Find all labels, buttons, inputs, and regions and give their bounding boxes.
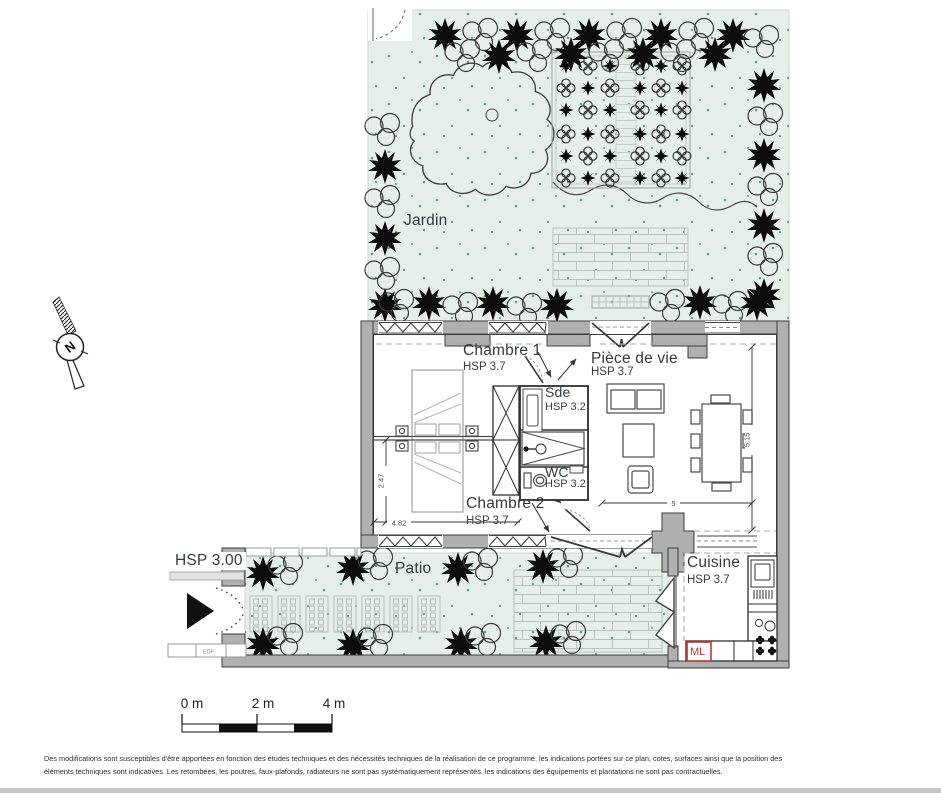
entrance bbox=[187, 588, 244, 634]
dim-bedroom-depth: 2.47 bbox=[377, 474, 386, 489]
shelf bbox=[570, 466, 583, 473]
chair bbox=[743, 458, 752, 472]
chair bbox=[691, 410, 700, 424]
oven-vents bbox=[754, 590, 772, 599]
street-wall bbox=[170, 572, 244, 580]
chair bbox=[691, 458, 700, 472]
hsp-wc: HSP 3.2 bbox=[545, 478, 586, 490]
garden-area bbox=[365, 8, 789, 326]
hsp-chambre1: HSP 3.7 bbox=[463, 361, 506, 373]
dim-living-width: 5 bbox=[671, 499, 675, 508]
north-needle bbox=[53, 297, 76, 335]
bed bbox=[412, 370, 463, 512]
room-label-sde: Sde bbox=[545, 384, 571, 400]
north-tail bbox=[67, 358, 84, 389]
disclaimer-line1: Des modifications sont susceptibles d'êt… bbox=[44, 752, 937, 765]
hsp-sde: HSP 3.2 bbox=[545, 401, 586, 413]
room-label-patio: Patio bbox=[395, 560, 431, 578]
disclaimer-line2: éléments techniques sont indicatives. Le… bbox=[44, 765, 937, 778]
edf-label: EDF bbox=[203, 650, 215, 656]
chair bbox=[691, 434, 700, 448]
entrance-hsp-label: HSP 3.00 bbox=[172, 552, 246, 570]
room-label-chambre2: Chambre 2 bbox=[466, 495, 544, 513]
room-label-chambre1: Chambre 1 bbox=[463, 342, 541, 360]
edf-panel: EDF bbox=[168, 644, 246, 657]
dining-table bbox=[702, 404, 741, 482]
floor-plan-page: EDF bbox=[0, 0, 941, 800]
patio-area bbox=[245, 546, 668, 664]
disclaimer: Des modifications sont susceptibles d'êt… bbox=[44, 752, 937, 778]
scale-4m: 4 m bbox=[323, 696, 346, 711]
dim-bedroom-width: 4.82 bbox=[392, 519, 407, 528]
hsp-piece-de-vie: HSP 3.7 bbox=[591, 366, 634, 378]
dim-living-depth: 5.15 bbox=[743, 433, 752, 448]
chair bbox=[712, 483, 731, 491]
hsp-cuisine: HSP 3.7 bbox=[687, 574, 730, 586]
chair bbox=[711, 395, 730, 403]
patio-fence bbox=[246, 548, 361, 556]
bottom-window-edge bbox=[0, 788, 941, 793]
north-arrow: N bbox=[53, 297, 88, 389]
garden-terrace bbox=[553, 228, 688, 286]
room-label-cuisine: Cuisine bbox=[687, 554, 740, 572]
entrance-arrow bbox=[187, 593, 214, 629]
hsp-chambre2: HSP 3.7 bbox=[466, 515, 509, 527]
scale-0m: 0 m bbox=[181, 696, 204, 711]
shower bbox=[522, 432, 584, 465]
coffee-table bbox=[623, 424, 654, 457]
chair bbox=[743, 410, 752, 424]
garden-gate-notch bbox=[368, 8, 412, 41]
ml-label: ML bbox=[690, 646, 705, 658]
wardrobe bbox=[493, 386, 519, 495]
scale-2m: 2 m bbox=[252, 696, 275, 711]
scale-bar: 0 m 2 m 4 m bbox=[181, 696, 346, 732]
room-label-jardin: Jardin bbox=[404, 212, 447, 230]
entrance-door-swings bbox=[216, 588, 244, 634]
floor-plan-drawing: EDF bbox=[0, 0, 941, 800]
